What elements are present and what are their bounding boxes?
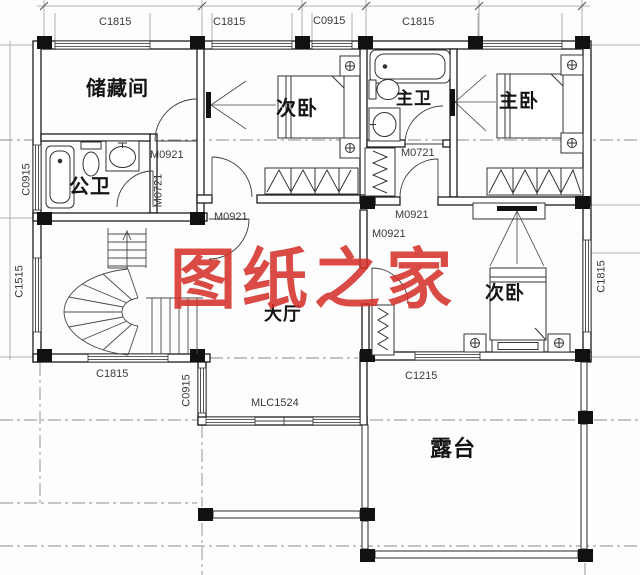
floor-plan-page: C1815 C1815 C0915 C1815 C0915 C1515 C181… — [0, 0, 640, 575]
door-bedroom-top — [212, 157, 252, 197]
nightstand-icon — [464, 334, 486, 352]
window-c0915-left — [33, 145, 41, 210]
sink-icon — [369, 108, 400, 141]
window-c1815-right — [583, 240, 591, 332]
bed-icon — [490, 268, 546, 340]
door-public-bath — [117, 171, 153, 207]
room-label-bedroom-top: 次卧 — [276, 99, 318, 119]
sink-icon — [106, 141, 139, 171]
nightstand-icon — [340, 138, 360, 158]
door-label-vestibule: M0921 — [395, 209, 429, 222]
door-label-public-bath: M0721 — [153, 169, 166, 213]
room-label-master-bedroom: 主卧 — [499, 92, 539, 111]
window-c1815-top2 — [212, 41, 292, 49]
door-master-bath — [405, 106, 443, 144]
room-label-terrace: 露台 — [430, 438, 476, 460]
room-label-storage: 储藏间 — [86, 79, 149, 99]
window-label-c0915-entry: C0915 — [181, 369, 194, 413]
window-label-c1215: C1215 — [405, 370, 437, 383]
window-c0915-entry — [198, 368, 206, 413]
window-mlc1524-left — [206, 417, 255, 425]
window-mlc1524-right — [313, 417, 360, 425]
window-c1815-top1 — [55, 41, 150, 49]
room-label-bedroom-bottom: 次卧 — [485, 284, 525, 303]
nightstand-icon — [561, 133, 583, 153]
window-label-c1815-top2: C1815 — [213, 16, 245, 29]
wardrobe-icon — [487, 168, 583, 195]
window-label-c1815-right: C1815 — [596, 255, 609, 299]
window-c1815-stair — [88, 354, 168, 362]
door-label-storage: M0921 — [150, 149, 184, 162]
closet-icon — [365, 148, 395, 196]
room-label-public-bath: 公卫 — [69, 177, 111, 197]
site-watermark: 图纸之家 — [170, 248, 458, 314]
window-label-c0915-left: C0915 — [21, 158, 34, 202]
toilet-icon — [369, 80, 399, 100]
bathtub-icon — [370, 50, 450, 83]
window-label-c1815-stair: C1815 — [96, 368, 128, 381]
window-c1215-bottom — [415, 352, 480, 360]
nightstand-icon — [561, 55, 583, 75]
door-label-master-bath: M0721 — [401, 147, 435, 160]
nightstand-icon — [340, 56, 360, 76]
door-storage — [155, 99, 197, 141]
nightstand-icon — [548, 334, 570, 352]
door-label-bedroom-top: M0921 — [214, 211, 248, 224]
window-label-c1815-top3: C1815 — [402, 16, 434, 29]
window-c1515-left — [33, 258, 41, 332]
door-label-mlc1524: MLC1524 — [251, 397, 299, 410]
toilet-icon — [81, 142, 101, 176]
window-c1815-top3 — [478, 41, 562, 49]
bed-bench-icon — [492, 340, 544, 352]
tv-icon — [206, 81, 276, 129]
window-label-c1515-left: C1515 — [14, 260, 27, 304]
window-label-c0915-top: C0915 — [313, 15, 345, 28]
door-vestibule — [400, 159, 438, 197]
wardrobe-icon — [265, 168, 358, 194]
window-c0915-top — [312, 41, 352, 49]
terrace-railings — [213, 362, 587, 558]
room-label-master-bath: 主卫 — [396, 90, 432, 107]
window-label-c1815-top1: C1815 — [99, 16, 131, 29]
door-label-bedroom-bottom: M0921 — [372, 228, 406, 241]
